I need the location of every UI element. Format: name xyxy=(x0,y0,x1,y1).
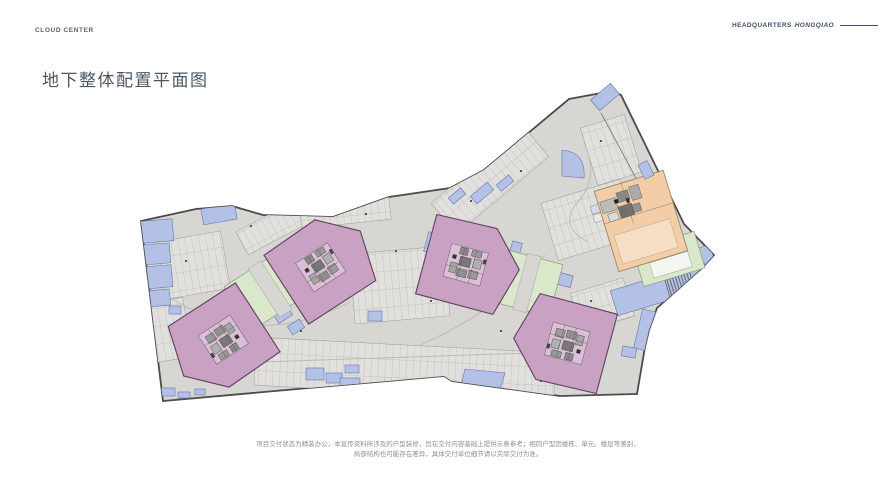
disclaimer-line-1: 项目交付状态为精装办公，本宣传资料所涉及的户型装修，旨在交付内容基础上提供示意参… xyxy=(0,440,896,450)
slide: CLOUD CENTER HEADQUARTERS HONGQIAO 地下整体配… xyxy=(0,0,896,502)
floor-plan-figure xyxy=(0,0,896,502)
underground-floor-plan xyxy=(0,0,896,502)
disclaimer: 项目交付状态为精装办公，本宣传资料所涉及的户型装修，旨在交付内容基础上提供示意参… xyxy=(0,440,896,460)
disclaimer-line-2: 局部结构也可能存在差异，具体交付单位细节请以实际交付为准。 xyxy=(0,450,896,460)
